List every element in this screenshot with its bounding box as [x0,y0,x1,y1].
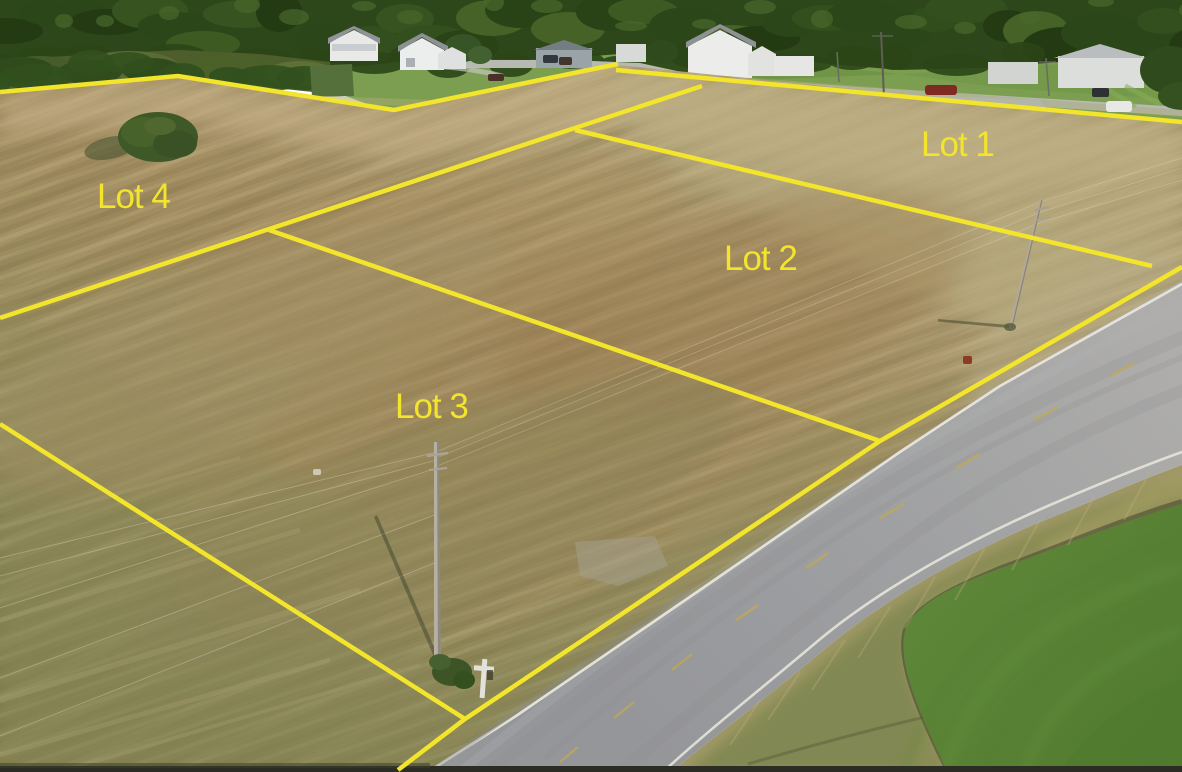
svg-text:Lot 2: Lot 2 [724,239,797,278]
svg-text:Lot 3: Lot 3 [395,387,468,426]
svg-text:Lot 1: Lot 1 [921,125,994,164]
svg-text:Lot 4: Lot 4 [97,177,170,216]
